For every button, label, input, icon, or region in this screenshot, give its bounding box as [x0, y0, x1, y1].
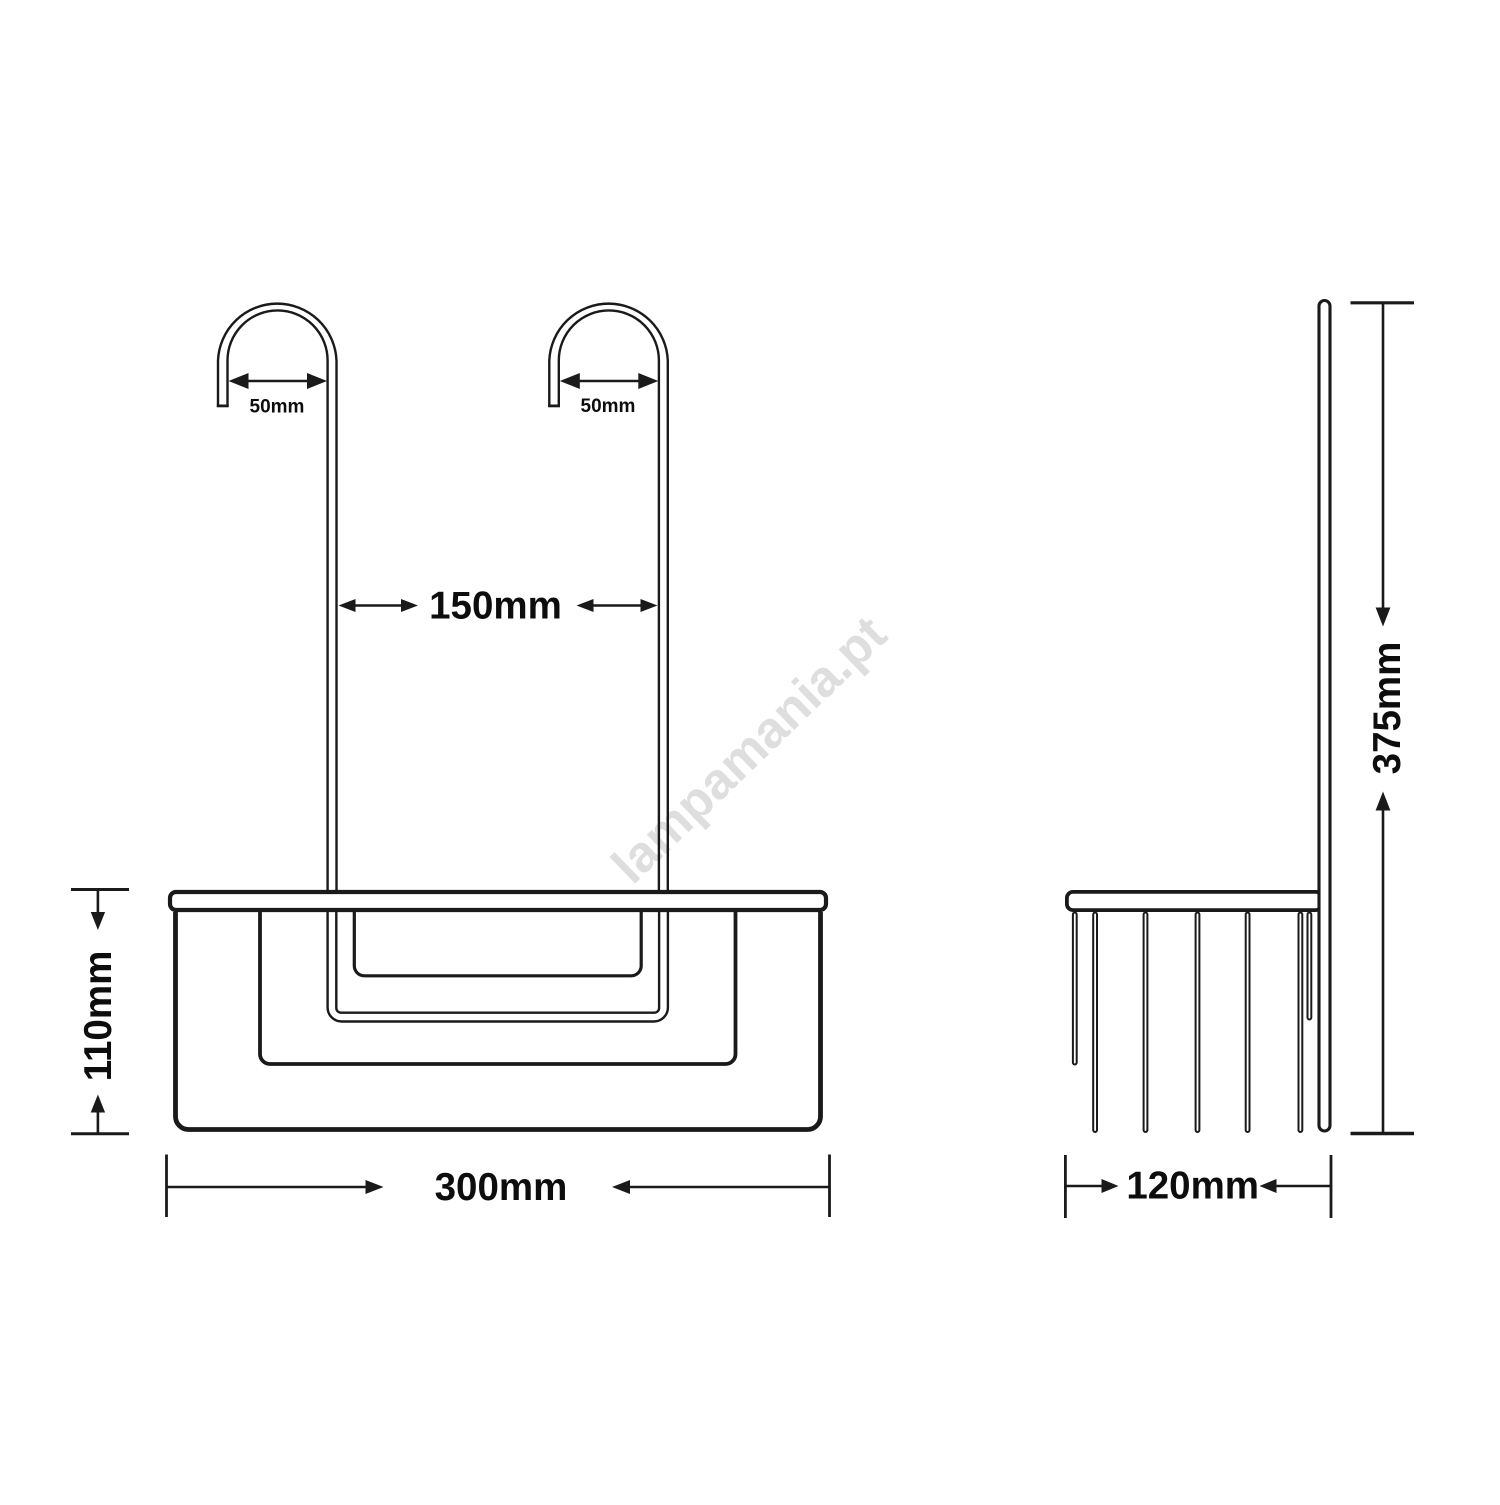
svg-text:50mm: 50mm: [581, 396, 636, 417]
svg-text:375mm: 375mm: [1366, 642, 1409, 775]
svg-text:110mm: 110mm: [77, 951, 120, 1082]
svg-text:120mm: 120mm: [1126, 1165, 1259, 1208]
svg-text:300mm: 300mm: [435, 1166, 568, 1209]
svg-text:50mm: 50mm: [250, 397, 305, 418]
svg-text:150mm: 150mm: [429, 585, 562, 628]
